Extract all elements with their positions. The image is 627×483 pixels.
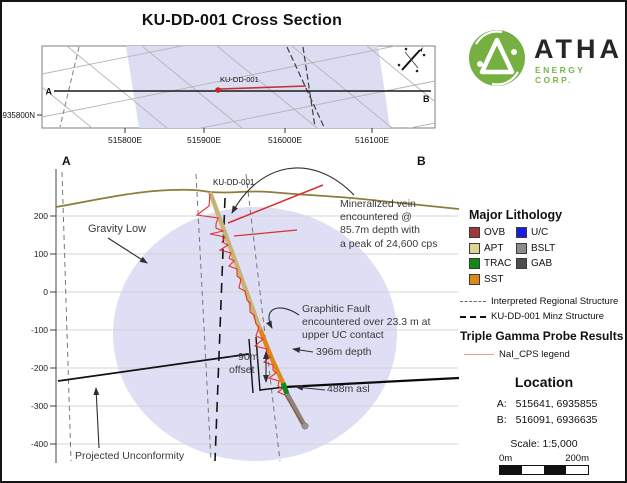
lithology-legend-title: Major Lithology (469, 208, 562, 222)
lithology-swatch-gab (516, 258, 527, 269)
asl-note: 488m asl (327, 383, 370, 396)
map-y-tick: 6935800N (2, 111, 35, 120)
gravity-low-label: Gravity Low (88, 223, 146, 236)
note-line: encountered over 23.3 m at (302, 316, 430, 329)
depth-note: 396m depth (316, 346, 371, 359)
lithology-label: GAB (531, 258, 552, 269)
atha-logo-icon (466, 22, 530, 94)
svg-text:0: 0 (43, 287, 48, 297)
note-line: ~ 90m (229, 351, 258, 364)
scale-bar-segment (566, 466, 588, 474)
lithology-label: SST (484, 274, 503, 285)
lithology-swatch-trac (469, 258, 480, 269)
svg-text:200: 200 (34, 211, 48, 221)
location-b-value: 516091, 6936635 (516, 412, 598, 428)
structure-legend-item: Interpreted Regional Structure (460, 294, 618, 309)
lithology-item: OVB (469, 227, 516, 238)
gamma-legend-label: NaI_CPS legend (499, 349, 570, 360)
lithology-item: BSLT (516, 243, 578, 254)
unconformity-arrow (96, 388, 99, 448)
map-hole-collar (215, 87, 221, 93)
lithology-label: APT (484, 243, 503, 254)
section-label-b: B (417, 154, 426, 168)
company-logo: ATHA ENERGY CORP. (464, 22, 624, 97)
map-label-a: A (46, 87, 53, 97)
offset-note: ~ 90m offset (229, 351, 258, 377)
lithology-item: APT (469, 243, 516, 254)
lithology-item: U/C (516, 227, 578, 238)
scale-bar-segment (522, 466, 544, 474)
lithology-label: TRAC (484, 258, 511, 269)
map-hole-label: KU-DD-001 (220, 75, 259, 84)
map-x-tick: 515800E (108, 135, 142, 145)
lithology-item: TRAC (469, 258, 516, 269)
map-label-b: B (423, 94, 430, 104)
lithology-legend: OVB U/C APT BSLT TRAC GAB SST (469, 225, 578, 287)
section-y-axis-ticks (50, 216, 56, 444)
scale-bar-max: 200m (565, 453, 589, 464)
lithology-item: SST (469, 274, 516, 285)
lithology-label: OVB (484, 227, 505, 238)
location-a-label: A: (491, 396, 507, 412)
location-b-label: B: (491, 412, 507, 428)
scale-text: Scale: 1:5,000 (470, 438, 618, 450)
note-line: Graphitic Fault (302, 303, 430, 316)
svg-text:-200: -200 (31, 363, 48, 373)
lithology-swatch-uc (516, 227, 527, 238)
scale-bar-segment (544, 466, 566, 474)
scale-bar-segments (499, 465, 589, 475)
location-row-b: B: 516091, 6936635 (470, 412, 618, 428)
lithology-item: GAB (516, 258, 578, 269)
lithology-swatch-bslt (516, 243, 527, 254)
map-x-tick: 515900E (187, 135, 221, 145)
section-hole-label: KU-DD-001 (213, 178, 255, 187)
gamma-legend-title: Triple Gamma Probe Results (460, 329, 623, 343)
map-x-tick: 516100E (355, 135, 389, 145)
brand-name: ATHA (534, 36, 623, 62)
vein-arrow (232, 168, 354, 213)
gray-dash-line-icon (460, 301, 486, 302)
location-block: Location A: 515641, 6935855 B: 516091, 6… (470, 374, 618, 428)
scale-bar-min: 0m (499, 453, 512, 464)
location-a-value: 515641, 6935855 (516, 396, 598, 412)
black-dash-line-icon (460, 316, 486, 318)
location-row-a: A: 515641, 6935855 (470, 396, 618, 412)
cross-section-report: KU-DD-001 Cross Section (0, 0, 627, 483)
structure-legend: Interpreted Regional Structure KU-DD-001… (460, 294, 618, 324)
lithology-swatch-ovb (469, 227, 480, 238)
graphitic-fault-note: Graphitic Fault encountered over 23.3 m … (302, 303, 430, 343)
note-line: Mineralized vein (340, 198, 438, 211)
lithology-swatch-sst (469, 274, 480, 285)
section-y-labels: 200 100 0 -100 -200 -300 -400 (31, 211, 48, 449)
projected-unconformity-label: Projected Unconformity (75, 450, 184, 463)
scale-bar-segment (500, 466, 522, 474)
note-line: a peak of 24,600 cps (340, 238, 438, 251)
structure-label: Interpreted Regional Structure (491, 296, 618, 307)
lithology-swatch-apt (469, 243, 480, 254)
gravity-low-arrow (108, 238, 147, 263)
map-x-tick: 516000E (268, 135, 302, 145)
scale-bar: 0m 200m (499, 453, 589, 475)
lithology-label: BSLT (531, 243, 555, 254)
svg-text:-400: -400 (31, 439, 48, 449)
gamma-legend-item: NaI_CPS legend (464, 349, 570, 360)
note-line: offset (229, 364, 258, 377)
lithology-label: U/C (531, 227, 548, 238)
structure-label: KU-DD-001 Minz Structure (491, 311, 604, 322)
section-label-a: A (62, 154, 71, 168)
note-line: encountered @ (340, 211, 438, 224)
mineralized-vein-note: Mineralized vein encountered @ 85.7m dep… (340, 198, 438, 251)
structure-legend-item: KU-DD-001 Minz Structure (460, 309, 618, 324)
location-title: Location (470, 374, 618, 390)
note-line: 85.7m depth with (340, 224, 438, 237)
svg-text:-100: -100 (31, 325, 48, 335)
brand-subtitle: ENERGY CORP. (535, 65, 624, 85)
note-line: upper UC contact (302, 329, 430, 342)
plan-map: A B KU-DD-001 515800E 515900E 516000E 51… (2, 2, 467, 202)
svg-text:-300: -300 (31, 401, 48, 411)
red-line-icon (464, 354, 494, 355)
svg-text:100: 100 (34, 249, 48, 259)
hole-end-marker (302, 423, 308, 429)
